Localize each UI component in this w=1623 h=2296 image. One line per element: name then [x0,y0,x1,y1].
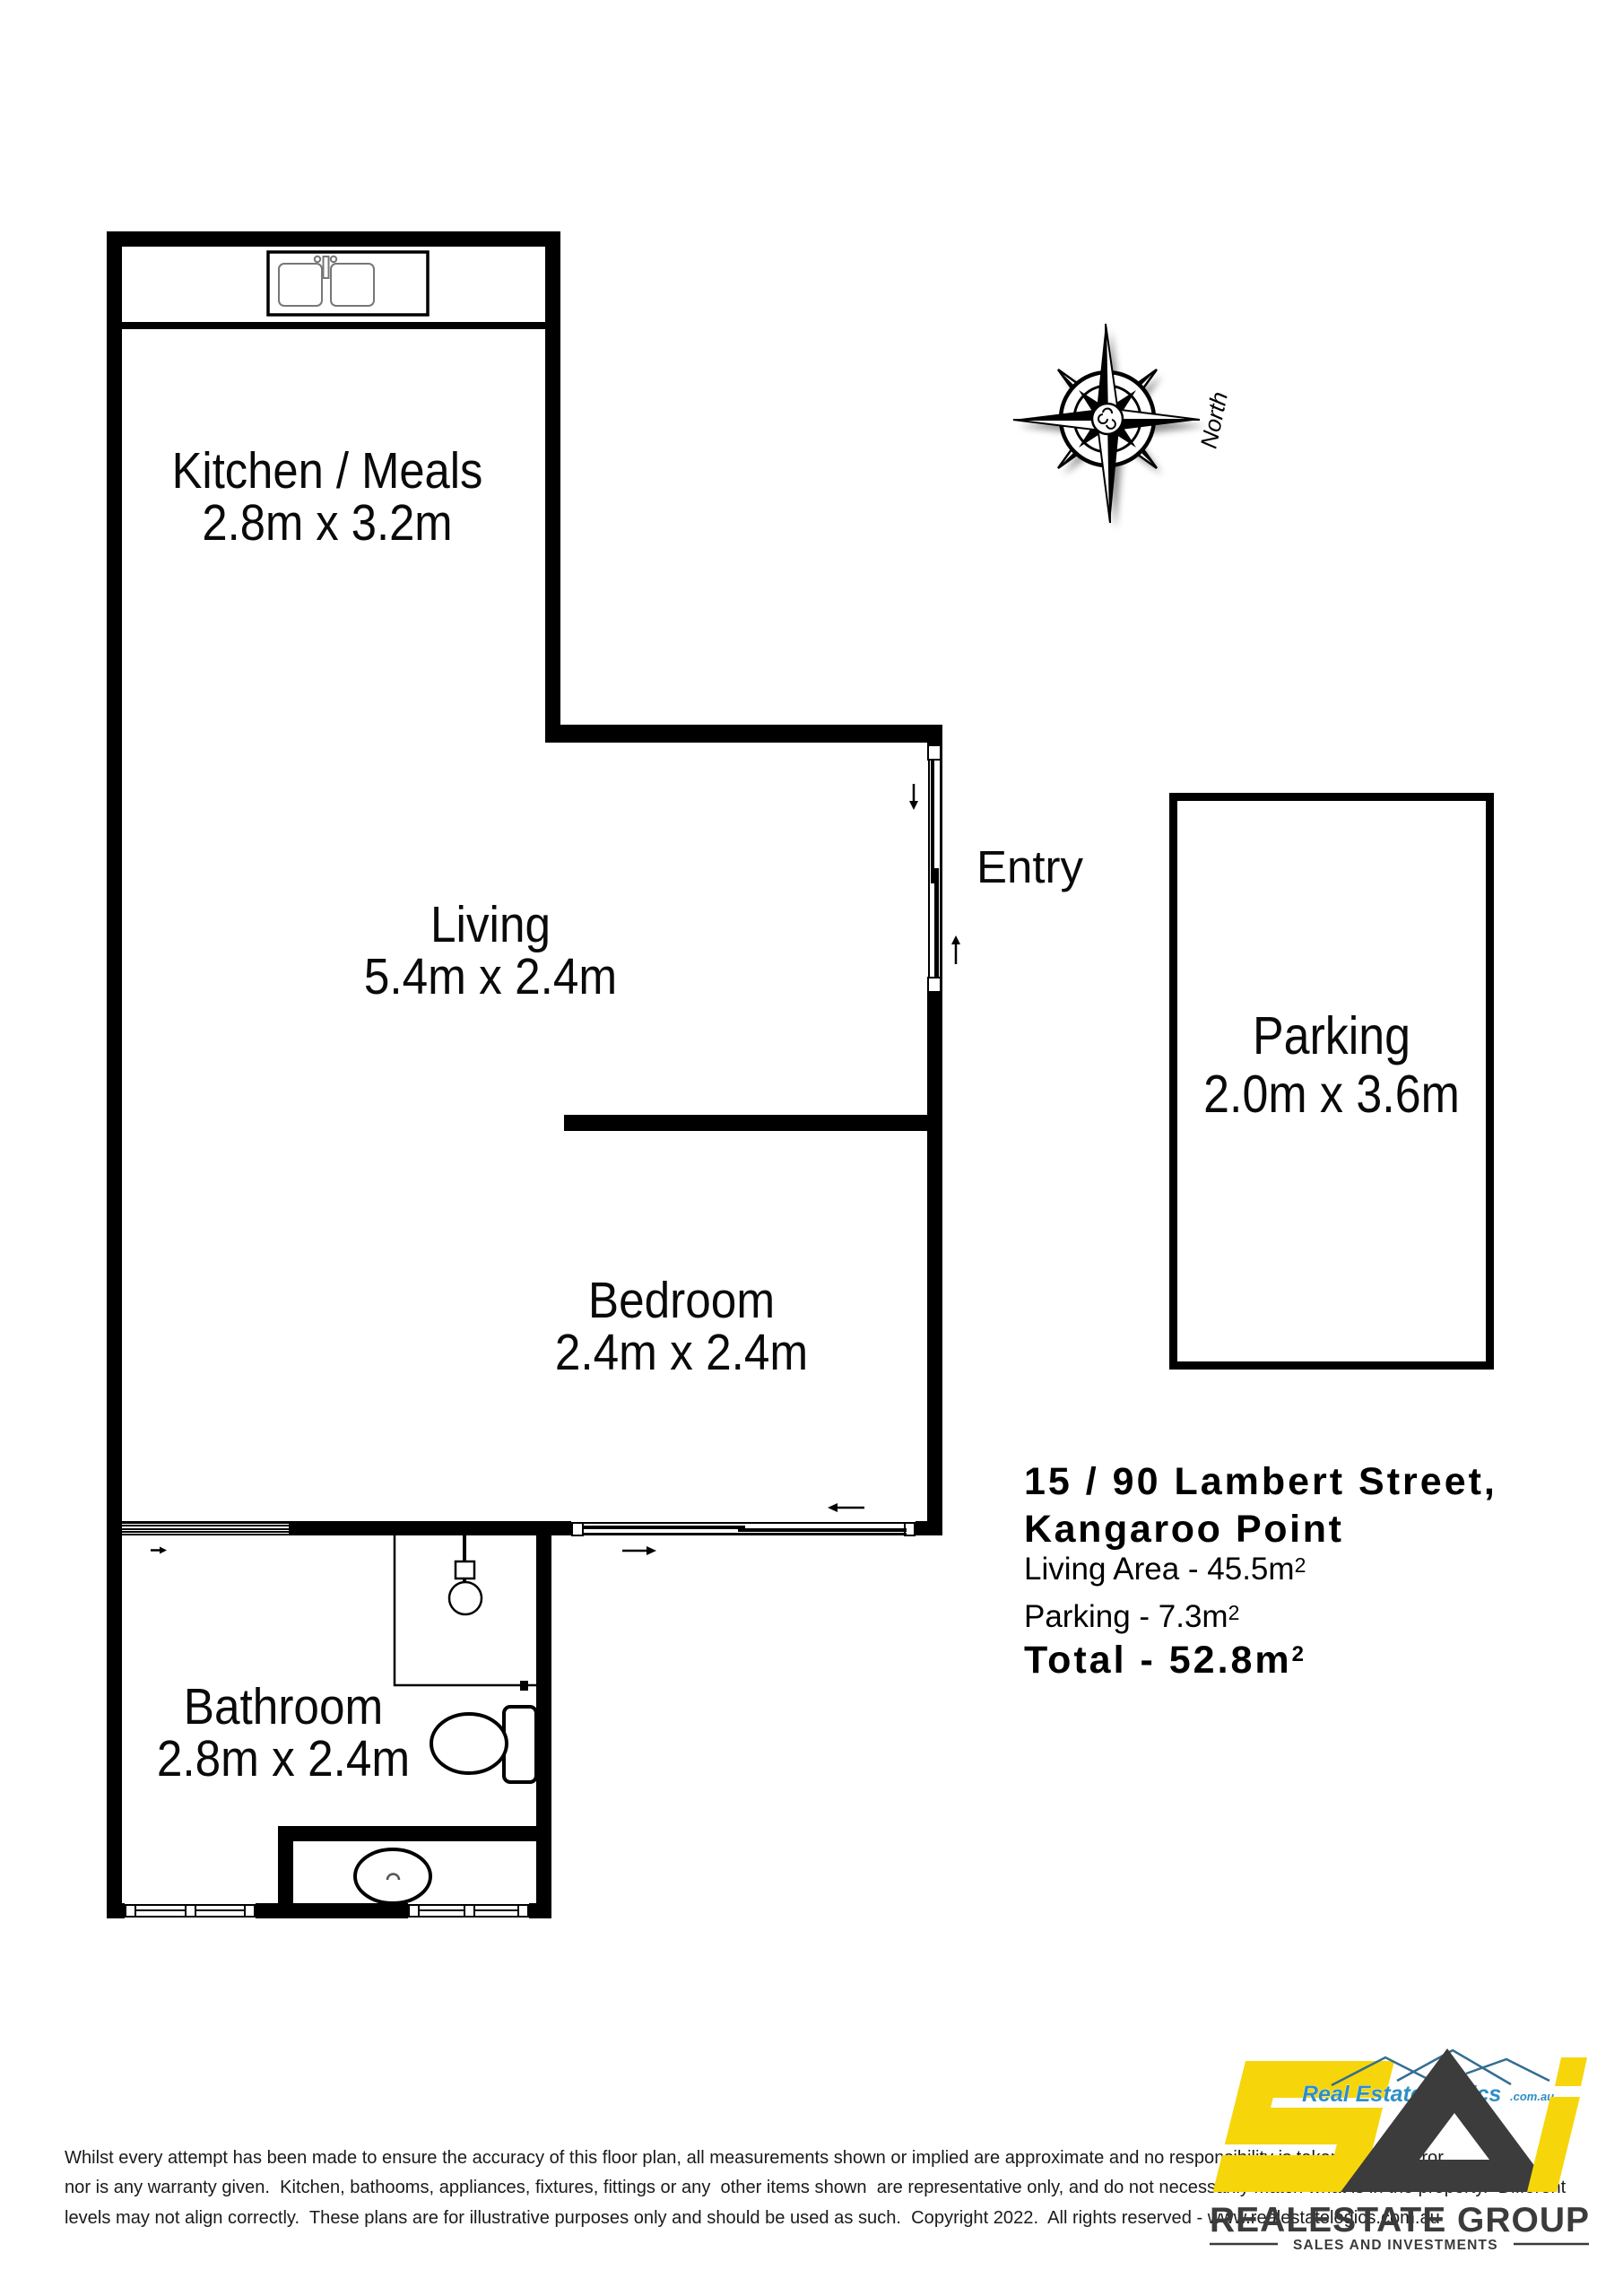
svg-text:REALESTATE GROUP: REALESTATE GROUP [1210,2201,1590,2239]
svg-text:.com.au: .com.au [1510,2090,1554,2103]
svg-text:SALES AND INVESTMENTS: SALES AND INVESTMENTS [1293,2238,1498,2253]
